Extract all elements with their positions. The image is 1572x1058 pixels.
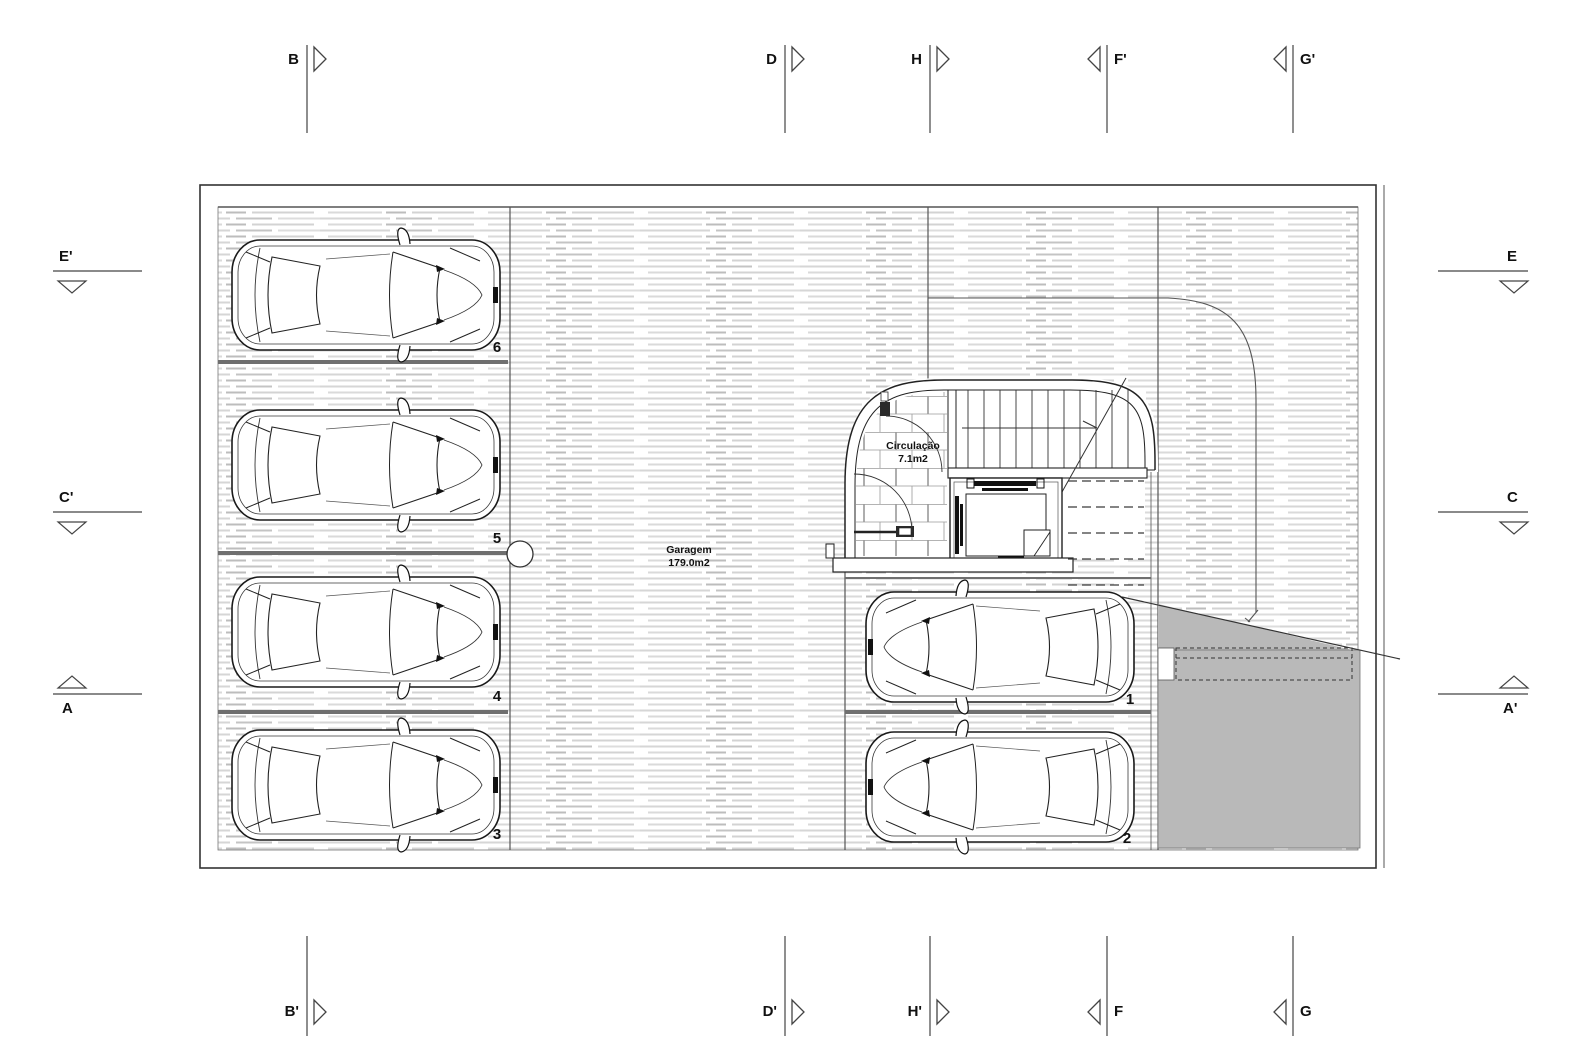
- car-stall-5: [232, 398, 500, 532]
- section-label-Ep: E': [59, 248, 73, 265]
- car-stall-2: [866, 720, 1134, 854]
- section-marker-F: [1088, 936, 1107, 1036]
- car-stall-1: [866, 580, 1134, 714]
- section-marker-Cp: [53, 512, 142, 534]
- section-marker-Gp: [1274, 45, 1293, 133]
- stall-number-2: 2: [1123, 830, 1131, 847]
- garage-room-label: Garagem 179.0m2: [666, 544, 712, 570]
- circulation-room-label: Circulação 7.1m2: [886, 440, 940, 466]
- stall-number-5: 5: [493, 530, 501, 547]
- section-marker-E: [1438, 271, 1528, 293]
- section-marker-D: [785, 45, 804, 133]
- section-label-F: F: [1114, 1003, 1123, 1020]
- stall-number-6: 6: [493, 339, 501, 356]
- garage-room-name: Garagem: [666, 544, 712, 557]
- section-label-B: B: [288, 51, 299, 68]
- stair-core: [826, 378, 1158, 585]
- section-marker-Dp: [785, 936, 804, 1036]
- car-stall-4: [232, 565, 500, 699]
- section-marker-H: [930, 45, 949, 133]
- section-label-E: E: [1507, 248, 1517, 265]
- circulation-room-area: 7.1m2: [886, 453, 940, 466]
- circulation-room-name: Circulação: [886, 440, 940, 453]
- section-label-Fp: F': [1114, 51, 1127, 68]
- section-marker-Bp: [307, 936, 326, 1036]
- section-label-Dp: D': [763, 1003, 777, 1020]
- floor-plan-drawing: [0, 0, 1572, 1058]
- section-label-Hp: H': [908, 1003, 922, 1020]
- section-marker-G: [1274, 936, 1293, 1036]
- section-marker-B: [307, 45, 326, 133]
- column: [507, 541, 533, 567]
- ramp-notch: [1158, 648, 1174, 680]
- section-label-Gp: G': [1300, 51, 1315, 68]
- elevator: [950, 478, 1062, 568]
- section-label-Ap: A': [1503, 700, 1517, 717]
- section-label-D: D: [766, 51, 777, 68]
- section-label-G: G: [1300, 1003, 1312, 1020]
- section-label-C: C: [1507, 489, 1518, 506]
- stall-number-1: 1: [1126, 691, 1134, 708]
- floor-plan-page: B D H F' G' B' D' H' F G E' C' A E C A' …: [0, 0, 1572, 1058]
- stall-number-4: 4: [493, 688, 501, 705]
- stall-number-3: 3: [493, 826, 501, 843]
- section-label-Bp: B': [285, 1003, 299, 1020]
- section-label-A: A: [62, 700, 73, 717]
- car-stall-6: [232, 228, 500, 362]
- section-marker-Ap: [1438, 676, 1528, 694]
- section-label-H: H: [911, 51, 922, 68]
- section-marker-Hp: [930, 936, 949, 1036]
- garage-room-area: 179.0m2: [666, 557, 712, 570]
- section-marker-A: [53, 676, 142, 694]
- section-label-Cp: C': [59, 489, 73, 506]
- section-marker-Fp: [1088, 45, 1107, 133]
- car-stall-3: [232, 718, 500, 852]
- section-marker-C: [1438, 512, 1528, 534]
- section-marker-Ep: [53, 271, 142, 293]
